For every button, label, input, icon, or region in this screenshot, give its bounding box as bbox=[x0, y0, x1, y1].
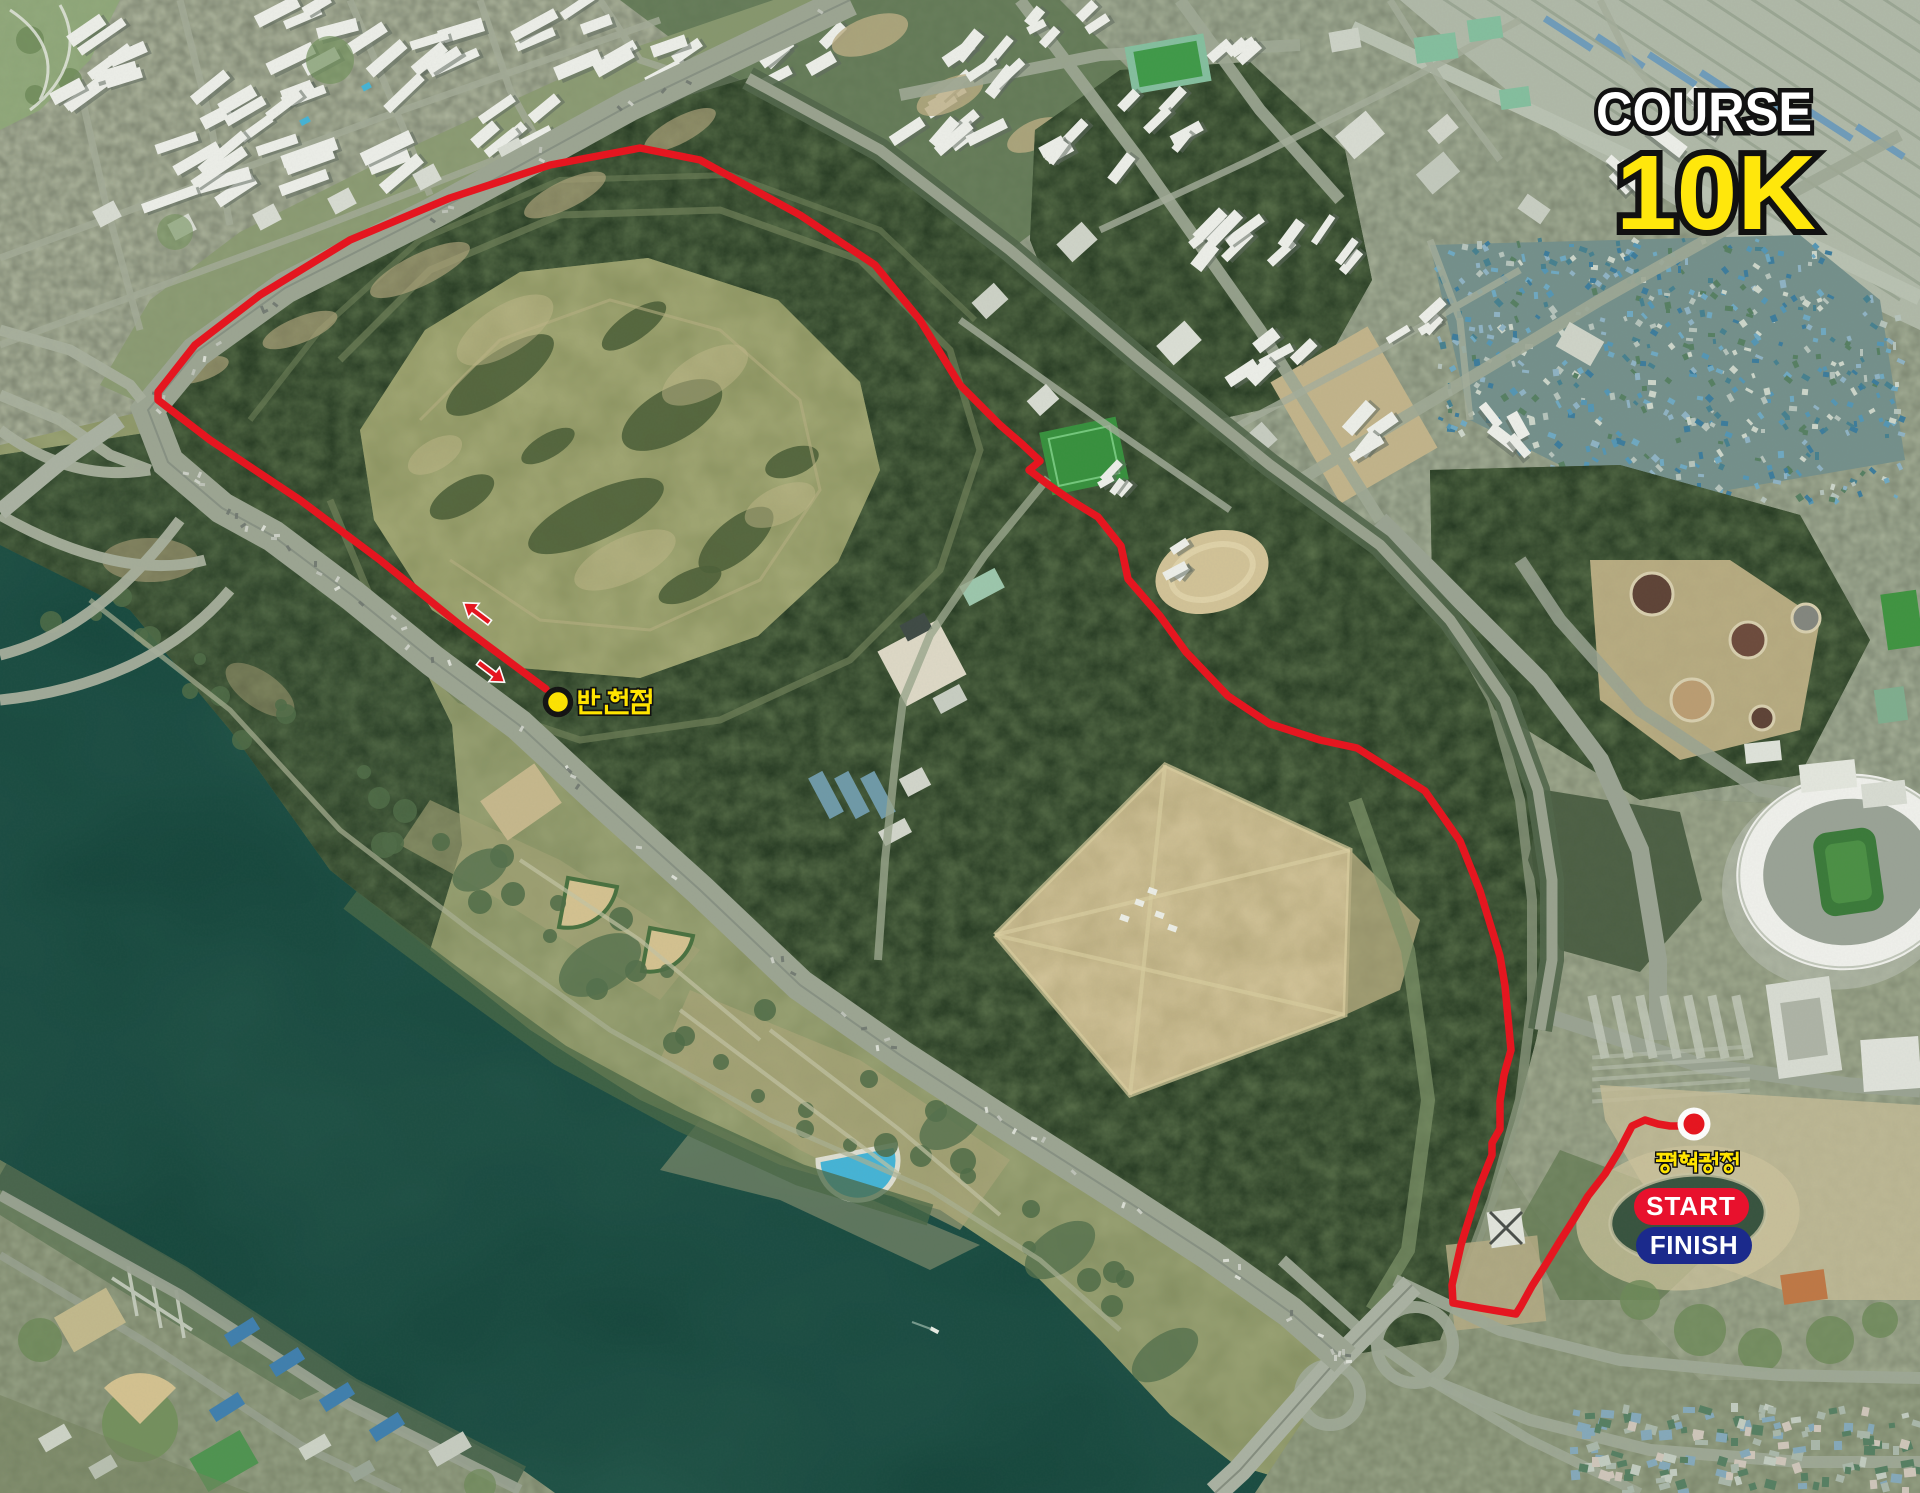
svg-text:START: START bbox=[1646, 1191, 1736, 1221]
svg-text:FINISH: FINISH bbox=[1650, 1230, 1738, 1260]
svg-text:10K: 10K bbox=[1616, 134, 1816, 252]
